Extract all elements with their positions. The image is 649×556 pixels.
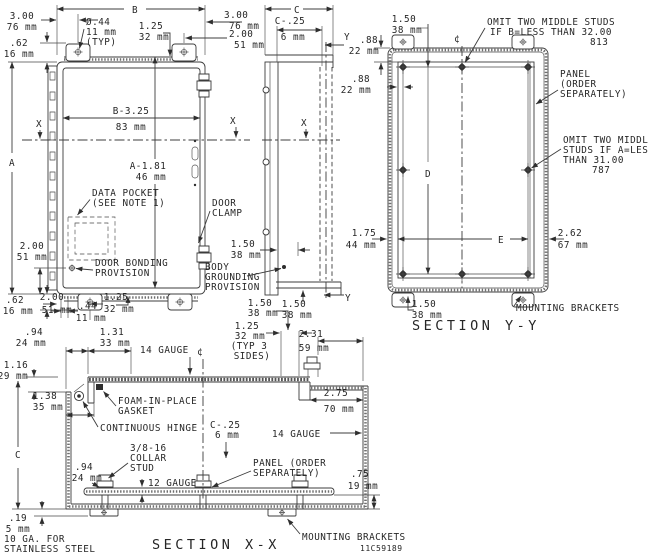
section-title: SECTION Y-Y bbox=[412, 318, 540, 334]
dim-label: 38 mm bbox=[392, 25, 423, 36]
dim-label: E bbox=[498, 235, 504, 246]
dim-label: 51 mm bbox=[42, 305, 73, 316]
dim-label: 3.00 bbox=[10, 11, 34, 22]
section-xx-view: ¢ .94 24 mm 1.31 33 mm 14 GAUGE 1.50 38 … bbox=[0, 298, 406, 555]
dim-label: 1.25 bbox=[139, 21, 163, 32]
dim-label: D bbox=[425, 169, 431, 180]
dim-label: 59 mm bbox=[299, 343, 330, 354]
latch-slot-upper bbox=[192, 147, 198, 160]
dim-label: 1.38 bbox=[33, 391, 57, 402]
note-label: STAINLESS STEEL bbox=[4, 544, 95, 555]
dim-label: .88 bbox=[360, 35, 378, 46]
dim-label: 2.31 bbox=[299, 329, 323, 340]
dim-label: 2.00 bbox=[229, 29, 253, 40]
latch-slot-lower bbox=[192, 165, 198, 178]
clamp-profile-top bbox=[263, 87, 269, 93]
wall-hatch bbox=[69, 388, 366, 507]
dim-label: 51 mm bbox=[17, 252, 48, 263]
callout-label: CLAMP bbox=[212, 208, 243, 219]
dim-label: 35 mm bbox=[33, 402, 64, 413]
leader-line bbox=[109, 463, 129, 478]
dim-label: 32 mm bbox=[139, 32, 170, 43]
callout-label: GASKET bbox=[118, 406, 155, 417]
dim-label: C bbox=[15, 450, 21, 461]
leader-line bbox=[104, 392, 117, 407]
dim-label: 1.50 bbox=[231, 239, 255, 250]
leader-line bbox=[76, 269, 93, 271]
door-inner-face bbox=[63, 68, 200, 288]
dim-label: 46 mm bbox=[136, 172, 167, 183]
hinge-pin bbox=[77, 394, 81, 398]
callout-label: 787 bbox=[592, 165, 610, 176]
callout-label: 813 bbox=[590, 37, 608, 48]
dim-label: .19 bbox=[9, 513, 27, 524]
dim-label: 2.75 bbox=[324, 388, 348, 399]
dim-label: 11 mm bbox=[76, 313, 107, 324]
bracket-holes-top bbox=[74, 48, 189, 57]
dim-label: 1.50 bbox=[282, 299, 306, 310]
dim-label: 19 mm bbox=[348, 481, 379, 492]
dim-label: 2.00 bbox=[40, 292, 64, 303]
dim-label: SIDES) bbox=[234, 351, 271, 362]
callout-label: PROVISION bbox=[95, 268, 150, 279]
section-marker: Y bbox=[344, 32, 350, 43]
dim-label: 1.31 bbox=[100, 327, 124, 338]
callout-label: PROVISION bbox=[205, 282, 260, 293]
section-marker: X bbox=[230, 116, 236, 127]
panel-outline bbox=[398, 62, 534, 278]
leader-line bbox=[212, 471, 251, 487]
dim-label: 16 mm bbox=[3, 306, 34, 317]
dim-label: B-3.25 bbox=[113, 106, 150, 117]
dim-label: C bbox=[294, 5, 300, 16]
data-pocket-inner bbox=[75, 223, 108, 254]
door-clamp-legs bbox=[308, 369, 318, 377]
panel-studs bbox=[396, 60, 535, 281]
grounding-stud-dot bbox=[282, 265, 286, 269]
dim-label: B bbox=[132, 5, 138, 16]
leader-line bbox=[78, 200, 91, 216]
dim-label: 2.62 bbox=[558, 228, 582, 239]
hinge-knuckles bbox=[50, 72, 55, 280]
dim-label: 1.50 bbox=[412, 299, 436, 310]
dim-label: 6 mm bbox=[281, 32, 305, 43]
dim-label: 38 mm bbox=[231, 250, 262, 261]
centerline-symbol: ¢ bbox=[454, 34, 460, 45]
clamp-profile-bottom bbox=[263, 229, 269, 235]
callout-label: 14 GAUGE bbox=[140, 345, 189, 356]
dim-label: 51 mm bbox=[234, 40, 265, 51]
dim-label: 32 mm bbox=[104, 304, 135, 315]
leader-line bbox=[465, 28, 485, 63]
stud-row-lines bbox=[403, 67, 528, 274]
centerline-symbol: ¢ bbox=[197, 347, 203, 358]
dim-label: 6 mm bbox=[215, 430, 239, 441]
section-marker: X bbox=[301, 118, 307, 129]
section-yy-view: ¢ D 1.50 38 mm .88 22 mm .88 22 mm OMIT … bbox=[341, 14, 649, 334]
dim-label: 1.16 bbox=[4, 360, 28, 371]
technical-drawing-canvas: B 3.00 76 mm .62 16 mm Ø.44 11 mm (TYP) … bbox=[0, 0, 649, 556]
dim-label: 22 mm bbox=[341, 85, 372, 96]
leader-line bbox=[83, 402, 98, 428]
gasket-section bbox=[96, 384, 103, 390]
dim-label: 22 mm bbox=[349, 46, 380, 57]
dim-label: A bbox=[9, 158, 15, 169]
callout-label: (SEE NOTE 1) bbox=[92, 198, 165, 209]
door-bonding-stud-cross bbox=[69, 265, 76, 272]
dim-label: .75 bbox=[351, 469, 369, 480]
side-view: C C-.25 6 mm Y Y X 1.50 38 mm 1.50 38 mm… bbox=[205, 5, 351, 321]
dim-label: 1.25 bbox=[104, 292, 128, 303]
callout-label: 14 GAUGE bbox=[272, 429, 321, 440]
top-flange-profile bbox=[265, 55, 333, 68]
leader-line bbox=[536, 90, 558, 104]
section-marker: X bbox=[36, 119, 42, 130]
dim-label: 83 mm bbox=[116, 122, 147, 133]
dim-label: 3.00 bbox=[224, 10, 248, 21]
section-marker: Y bbox=[345, 293, 351, 304]
yy-bracket-holes bbox=[400, 39, 527, 304]
drawing-page: { "meta": { "drawing_number": "11C59189"… bbox=[0, 0, 649, 556]
latch-dot-lower bbox=[194, 184, 196, 186]
dim-label: .62 bbox=[6, 295, 24, 306]
dim-label: A-1.81 bbox=[130, 161, 167, 172]
dim-label: 33 mm bbox=[100, 338, 131, 349]
dim-label: 24 mm bbox=[16, 338, 47, 349]
dim-label: 38 mm bbox=[282, 310, 313, 321]
dim-label: .88 bbox=[352, 74, 370, 85]
dim-label: .94 bbox=[75, 462, 93, 473]
dim-label: 67 mm bbox=[558, 240, 589, 251]
bottom-flange-profile bbox=[276, 282, 341, 295]
leader-line bbox=[288, 519, 301, 534]
callout-label: SEPARATELY) bbox=[560, 89, 627, 100]
dim-label: 44 mm bbox=[346, 240, 377, 251]
callout-label: SEPARATELY) bbox=[253, 468, 320, 479]
door-profile bbox=[265, 62, 278, 295]
dim-label: 16 mm bbox=[4, 49, 35, 60]
dim-label: C-.25 bbox=[275, 16, 306, 27]
callout-label: STUD bbox=[130, 463, 154, 474]
callout-label: CONTINUOUS HINGE bbox=[100, 423, 198, 434]
dim-label: 76 mm bbox=[7, 22, 38, 33]
section-title: SECTION X-X bbox=[152, 537, 280, 553]
hinge-strip bbox=[48, 66, 57, 290]
dim-label: .44 bbox=[79, 301, 97, 312]
xx-bracket-holes bbox=[101, 510, 285, 516]
dim-label: (TYP) bbox=[86, 37, 117, 48]
door-clamp-top bbox=[197, 74, 211, 97]
dim-label: 70 mm bbox=[324, 404, 355, 415]
dim-label: 1.50 bbox=[392, 14, 416, 25]
dim-label: .62 bbox=[10, 38, 28, 49]
dim-label: 2.00 bbox=[20, 241, 44, 252]
clamp-profile-mid bbox=[263, 159, 269, 165]
dim-label: 1.75 bbox=[352, 228, 376, 239]
dim-label: 29 mm bbox=[0, 371, 28, 382]
dim-label: .94 bbox=[25, 327, 43, 338]
door-clamp-section bbox=[304, 357, 320, 369]
drawing-number: 11C59189 bbox=[360, 544, 403, 553]
dim-label: 38 mm bbox=[248, 308, 279, 319]
hinge-leaf bbox=[74, 384, 84, 392]
callout-label: 12 GAUGE bbox=[148, 478, 197, 489]
callout-label: MOUNTING BRACKETS bbox=[302, 532, 406, 543]
callout-label: MOUNTING BRACKETS bbox=[516, 303, 620, 314]
dim-label: 24 mm bbox=[72, 473, 103, 484]
